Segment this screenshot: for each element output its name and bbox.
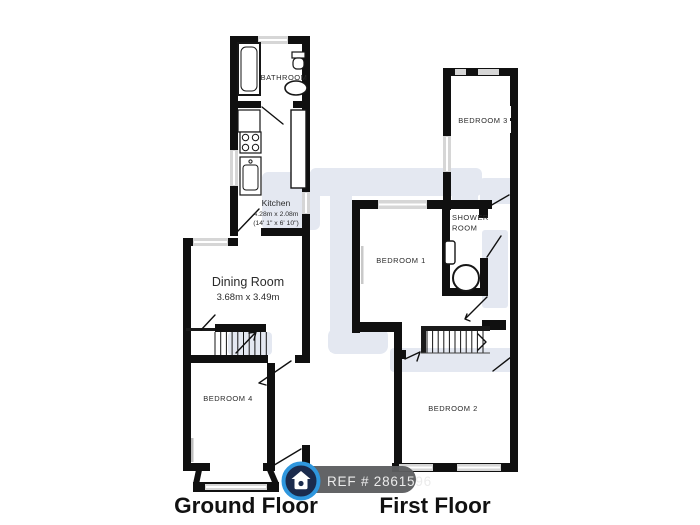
- toilet-icon: [292, 52, 305, 69]
- bedroom4-label: BEDROOM 4: [203, 394, 253, 403]
- bedroom2-label: BEDROOM 2: [428, 404, 478, 413]
- kitchen-dims-imperial: (14' 1" x 6' 10"): [253, 220, 299, 227]
- first-floor-title: First Floor: [379, 493, 490, 518]
- kitchen-worktop-right: [291, 110, 306, 188]
- basin-icon: [453, 265, 479, 291]
- bedroom1-label: BEDROOM 1: [376, 256, 426, 265]
- radiator-bedroom4: [191, 438, 194, 462]
- floorplan-screenshot: BATHROOM Kitchen 4.28m x 2.08m (14' 1" x…: [0, 0, 700, 525]
- radiator-bedroom1: [361, 246, 364, 284]
- kitchen-sink-icon: [240, 157, 261, 195]
- shower-tray-icon: [445, 241, 455, 264]
- hob-icon: [240, 132, 261, 153]
- kitchen-label: Kitchen: [262, 198, 291, 208]
- ground-floor-plan: BATHROOM Kitchen 4.28m x 2.08m (14' 1" x…: [183, 36, 310, 492]
- shower-room-label-line2: ROOM: [452, 224, 477, 233]
- dining-room-label: Dining Room: [212, 275, 284, 289]
- bathtub-icon: [238, 43, 260, 95]
- dining-door: [201, 315, 215, 330]
- floorplan-image: BATHROOM Kitchen 4.28m x 2.08m (14' 1" x…: [0, 0, 700, 525]
- ref-number: REF # 2861596: [327, 474, 432, 489]
- bedroom1-door: [465, 297, 487, 321]
- shower-room-label-line1: SHOWER: [452, 213, 489, 222]
- bay-window: [193, 470, 279, 492]
- kitchen-dims-metric: 4.28m x 2.08m: [254, 211, 299, 218]
- house-icon-dot: [298, 481, 303, 486]
- ground-floor-walls: [183, 36, 310, 471]
- kitchen-worktop-left: [238, 110, 260, 132]
- bedroom3-label: BEDROOM 3: [458, 116, 508, 125]
- dining-room-dims: 3.68m x 3.49m: [217, 292, 280, 303]
- bathroom-label: BATHROOM: [261, 73, 308, 82]
- bathroom-door: [262, 107, 283, 124]
- bathroom-sink-icon: [285, 81, 307, 95]
